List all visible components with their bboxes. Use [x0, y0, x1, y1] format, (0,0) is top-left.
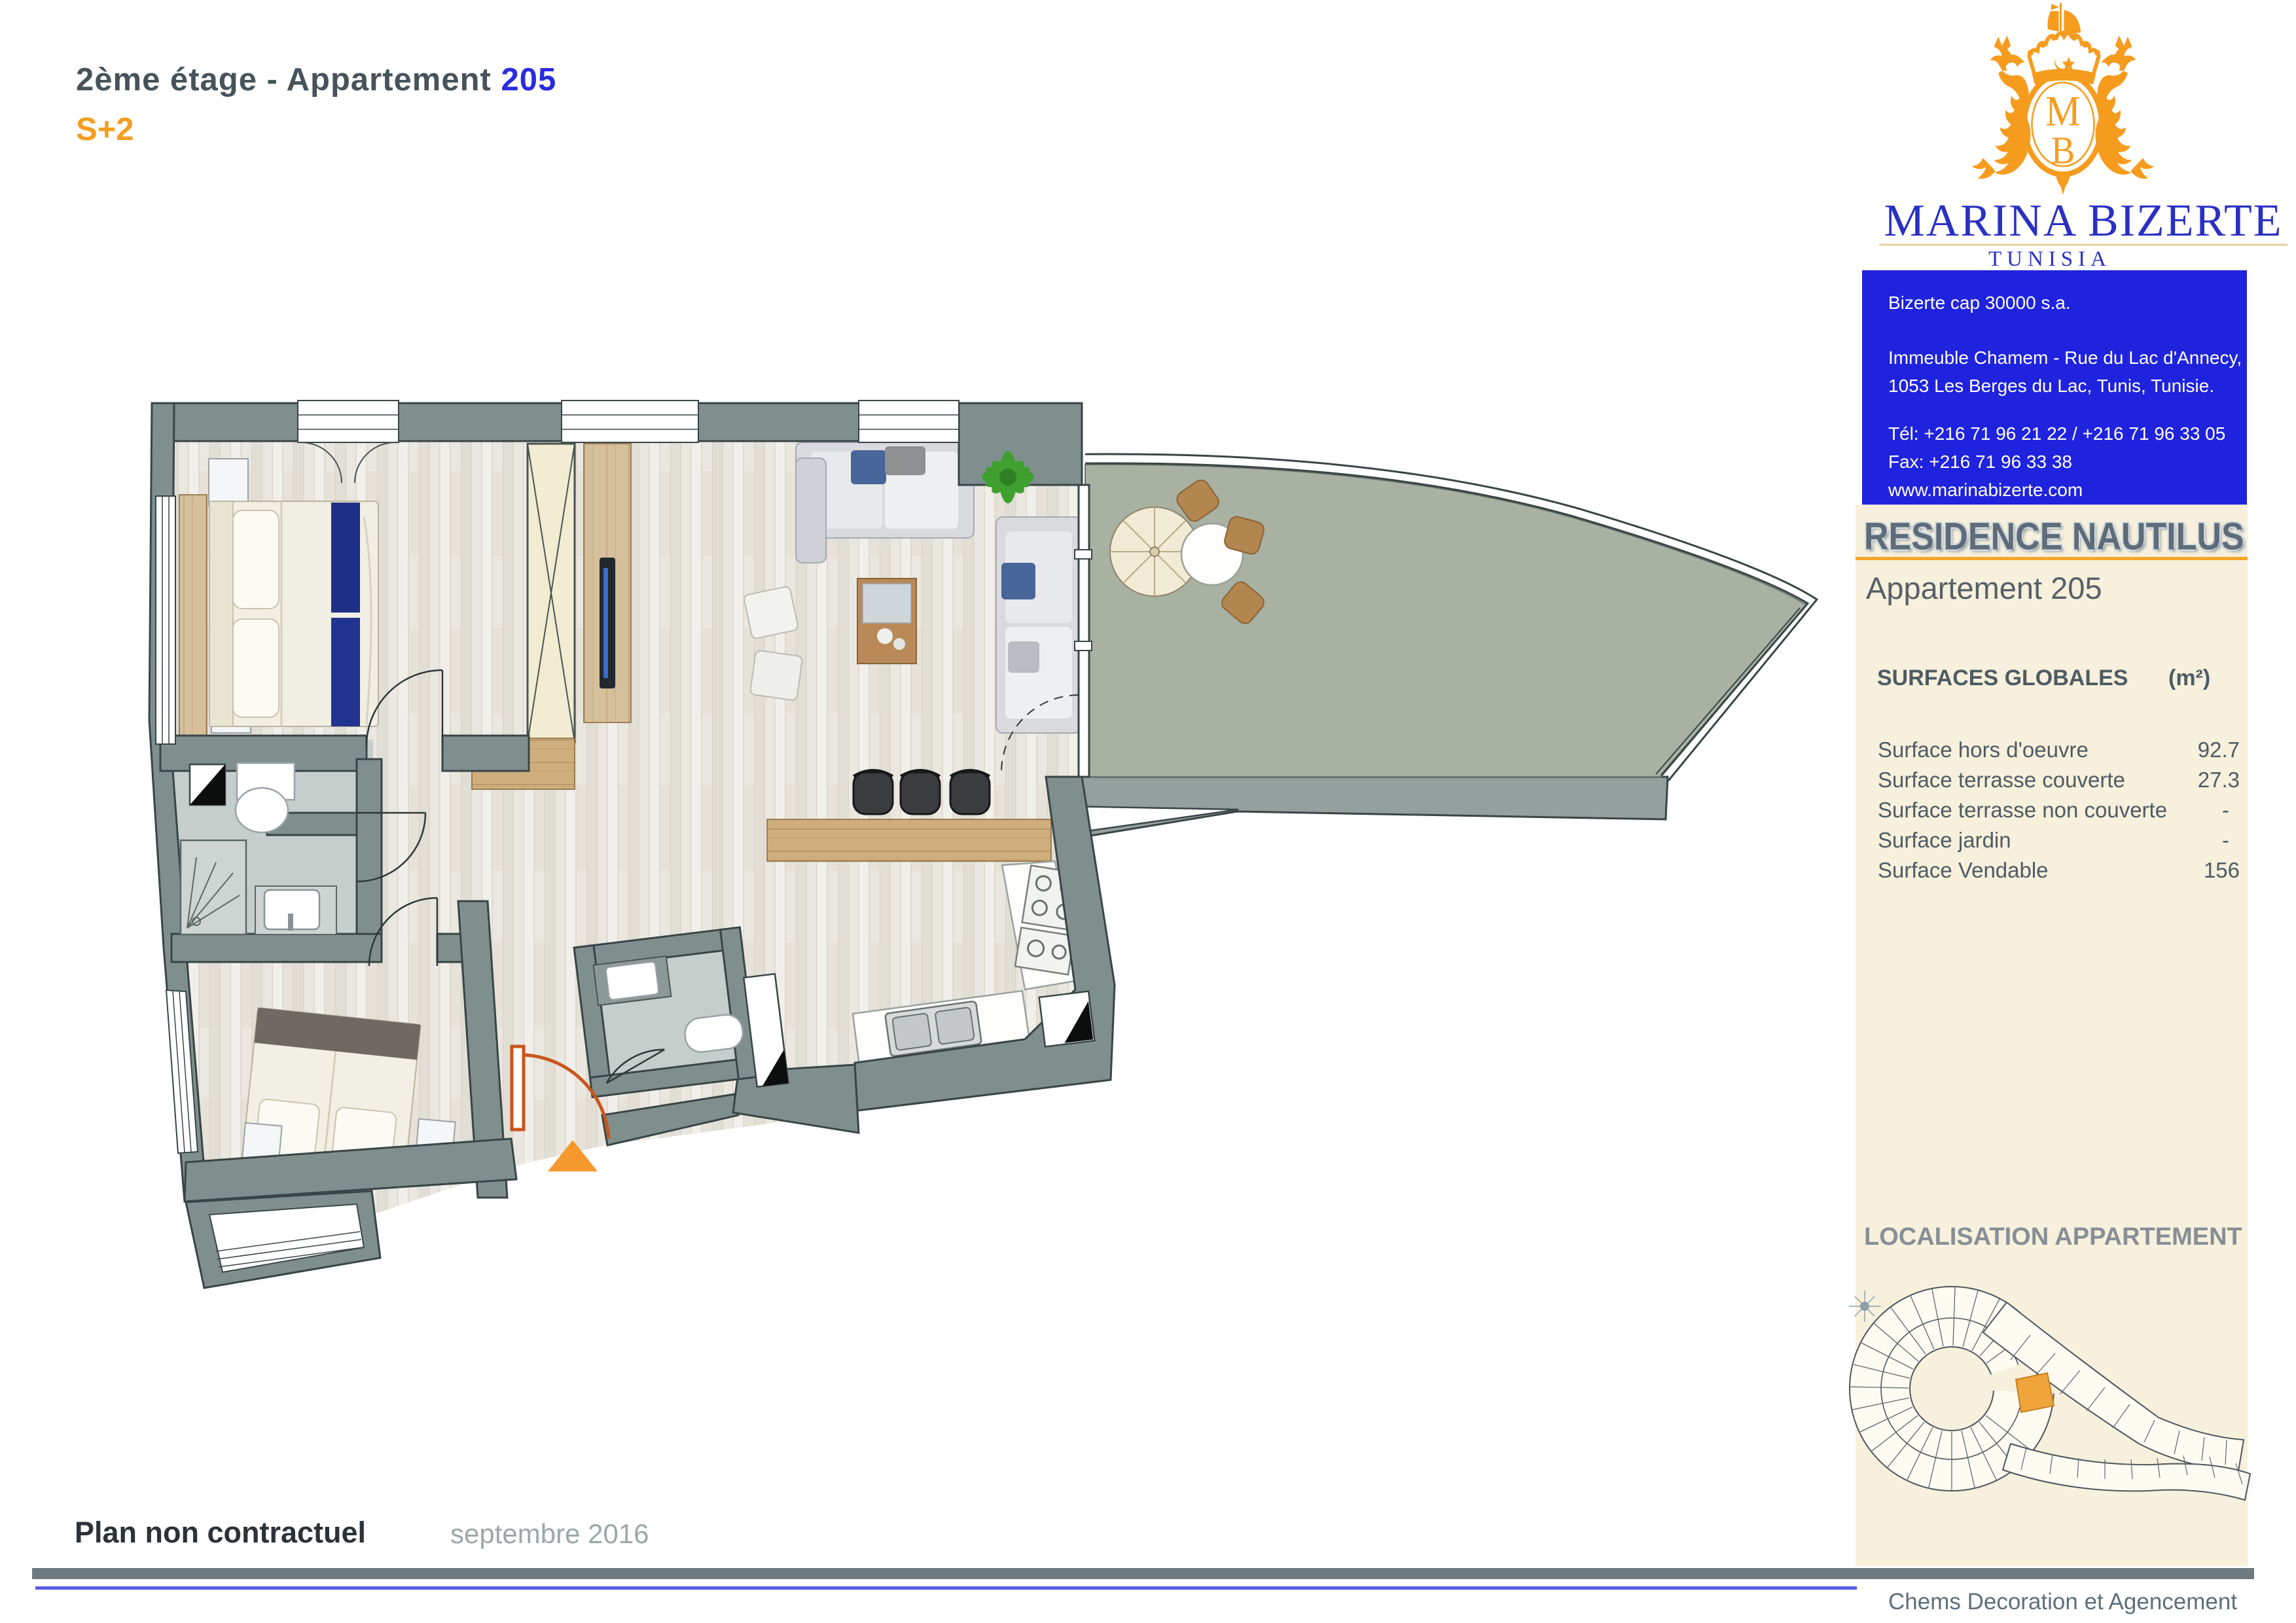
svg-text:M: M	[2045, 87, 2081, 135]
svg-text:TUNISIA: TUNISIA	[1988, 247, 2111, 271]
svg-text:MARINA BIZERTE: MARINA BIZERTE	[1884, 196, 2282, 246]
svg-text:B: B	[2051, 129, 2075, 171]
